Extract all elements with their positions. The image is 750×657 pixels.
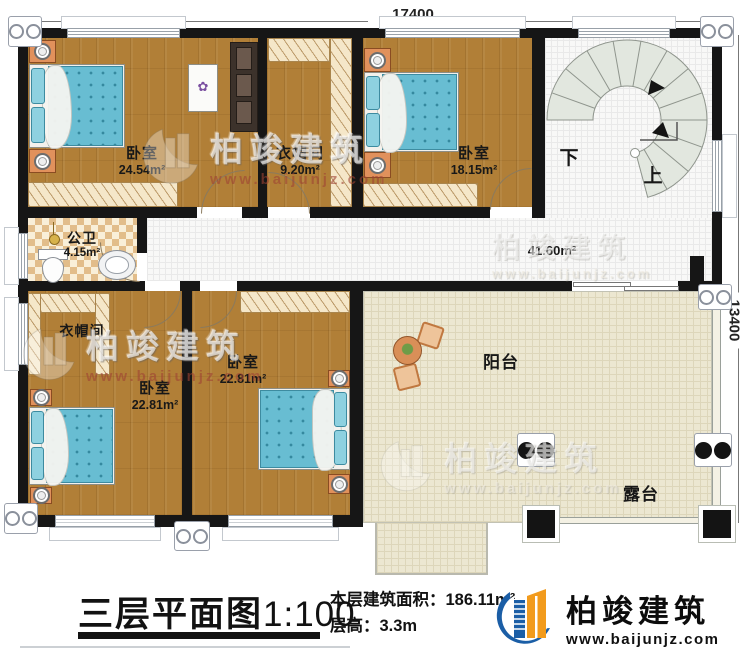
floorplan-canvas: 17400 13400 [0, 0, 750, 657]
pillow [334, 392, 347, 427]
terrace-column-base [694, 433, 732, 467]
room-name: 卧室 [428, 146, 520, 163]
terrace-pillar [699, 506, 735, 542]
lamp-icon [34, 153, 51, 170]
pilaster-ornament [4, 503, 38, 534]
window [712, 140, 722, 212]
wall-bedroomTL-closet [258, 38, 267, 218]
stairs-down-label: 下 [554, 148, 584, 169]
dimension-line-right [738, 35, 739, 523]
wall-closet-bedroomTR [352, 38, 363, 218]
height-label: 层高： [330, 617, 380, 635]
window-sill [222, 527, 339, 541]
wall-mid-h2a [18, 281, 145, 291]
wall-bedroomTR-stairs [532, 38, 545, 218]
pillow [334, 430, 347, 465]
window [385, 28, 520, 38]
window [55, 515, 155, 527]
pillow [31, 107, 45, 143]
room-name: 阳台 [468, 353, 534, 372]
spiral-staircase [545, 36, 713, 236]
terrace-pillar [523, 506, 559, 542]
lamp-icon [33, 487, 50, 504]
nightstand [328, 474, 350, 494]
nightstand [30, 389, 52, 406]
room-name: 卧室 [92, 146, 192, 163]
nightstand [29, 149, 56, 173]
room-area: 22.81m² [198, 372, 288, 386]
lamp-icon [33, 389, 50, 406]
nightstand [328, 370, 350, 387]
stairs-up-label: 上 [638, 166, 668, 187]
pillow [31, 411, 44, 444]
room-label-closet-top: 衣帽间 9.20m² [254, 146, 346, 177]
window-sill [49, 527, 161, 541]
height-value: 3.3m [380, 617, 418, 635]
room-label-bathroom: 公卫 4.15m² [50, 231, 114, 260]
wardrobe [363, 183, 478, 207]
title-underline-thin [20, 646, 350, 648]
room-name: 公卫 [50, 231, 114, 247]
pillow [31, 447, 44, 480]
company-url: www.baijunjz.com [566, 631, 719, 648]
terrace-railing-bottom [548, 517, 712, 524]
dresser-with-plant: ✿ [188, 64, 218, 112]
room-area: 18.15m² [428, 163, 520, 177]
patio-table [393, 336, 422, 365]
window-sill [4, 297, 19, 371]
room-label-balcony: 阳台 [468, 353, 534, 372]
floor-terrace-tab [375, 523, 488, 575]
room-name: 露台 [608, 485, 674, 504]
room-name: 卧室 [198, 355, 288, 372]
wall-mid-h1a [18, 207, 197, 218]
lamp-icon [331, 370, 348, 387]
pilaster-ornament [698, 284, 732, 310]
wardrobe [268, 38, 330, 62]
window [67, 28, 180, 38]
room-label-bedroom-bottom-middle: 卧室 22.81m² [198, 355, 288, 386]
company-logo-icon [486, 584, 558, 650]
pilaster-ornament [8, 16, 42, 47]
wall-bedroomBM-balcony [350, 291, 363, 518]
wardrobe [40, 293, 96, 313]
window [18, 233, 28, 279]
room-name: 衣帽间 [50, 324, 114, 340]
company-name: 柏竣建筑 [566, 586, 719, 631]
pillow [31, 68, 45, 104]
window-sill [722, 134, 737, 218]
room-label-hall-area: 41.60m² [512, 244, 592, 259]
title-underline [78, 632, 320, 639]
room-label-bedroom-bottom-left: 卧室 22.81m² [110, 381, 200, 412]
wall-bottom-c [333, 515, 363, 527]
window-sill [4, 227, 19, 285]
area-label: 本层建筑面积： [330, 591, 446, 609]
balcony-railing-right [712, 291, 721, 523]
sliding-door-leaf [573, 282, 631, 287]
wall-mid-h1c [310, 207, 490, 218]
lamp-icon [369, 52, 386, 69]
room-area: 4.15m² [50, 247, 114, 260]
wardrobe [240, 291, 350, 313]
lamp-icon [331, 476, 348, 493]
pillow [366, 76, 380, 110]
wall-mid-h1b [242, 207, 268, 218]
wardrobe [28, 182, 178, 207]
pillow [366, 113, 380, 147]
room-area: 24.54m² [92, 163, 192, 177]
room-area: 9.20m² [254, 163, 346, 177]
window [18, 303, 28, 365]
room-label-bedroom-top-right: 卧室 18.15m² [428, 146, 520, 177]
room-name: 卧室 [110, 381, 200, 398]
tv-cabinet [230, 42, 258, 132]
wardrobe [330, 38, 352, 207]
window [228, 515, 333, 527]
nightstand [364, 152, 391, 178]
sliding-door-leaf [624, 286, 679, 291]
company-logo: 柏竣建筑 www.baijunjz.com [486, 584, 719, 650]
room-label-terrace: 露台 [608, 485, 674, 504]
plan-title-text: 三层平面图 [78, 595, 263, 634]
nightstand [364, 48, 391, 72]
wall-mid-h2c [237, 281, 363, 291]
terrace-column-base [517, 433, 555, 467]
wall-mid-h2b [180, 281, 200, 291]
room-area: 22.81m² [110, 398, 200, 412]
room-label-closet-bottom: 衣帽间 [50, 324, 114, 340]
wall-corner-stub [690, 256, 704, 286]
room-label-bedroom-top-left: 卧室 24.54m² [92, 146, 192, 177]
wall-balcony-top [363, 281, 572, 291]
lamp-icon [369, 157, 386, 174]
pilaster-ornament [174, 521, 210, 551]
pilaster-ornament [700, 16, 734, 47]
room-name: 衣帽间 [254, 146, 346, 163]
plan-title: 三层平面图1:100 [78, 586, 356, 637]
room-area: 41.60m² [512, 244, 592, 259]
nightstand [30, 487, 52, 504]
